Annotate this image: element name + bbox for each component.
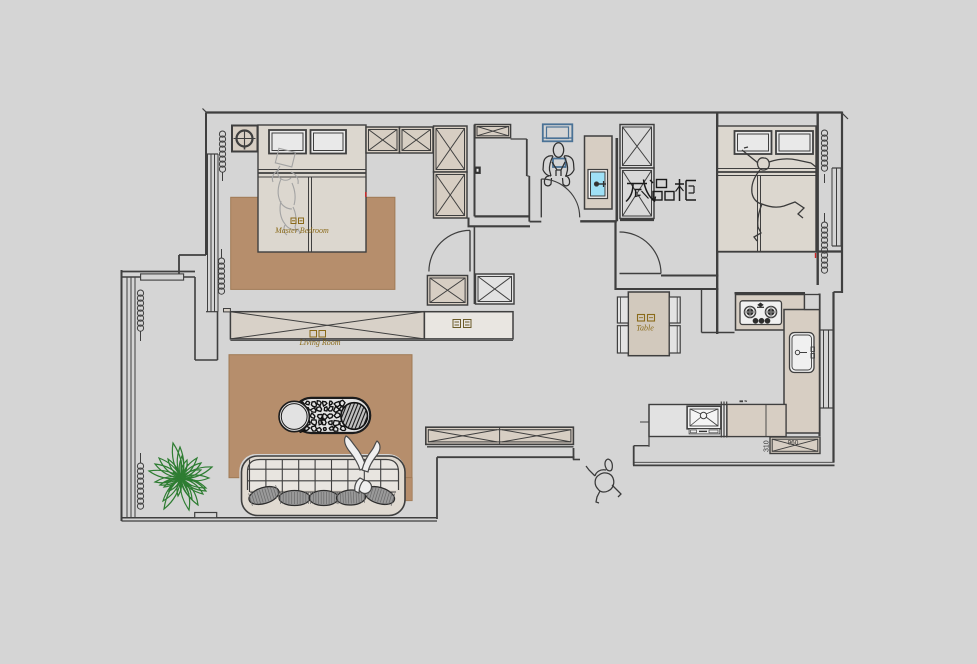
svg-text:Master Bedroom: Master Bedroom: [274, 226, 329, 235]
svg-text:960: 960: [788, 440, 799, 447]
svg-text:Table: Table: [636, 324, 654, 333]
svg-text:310: 310: [764, 440, 771, 452]
svg-text:Living Room: Living Room: [298, 338, 340, 347]
